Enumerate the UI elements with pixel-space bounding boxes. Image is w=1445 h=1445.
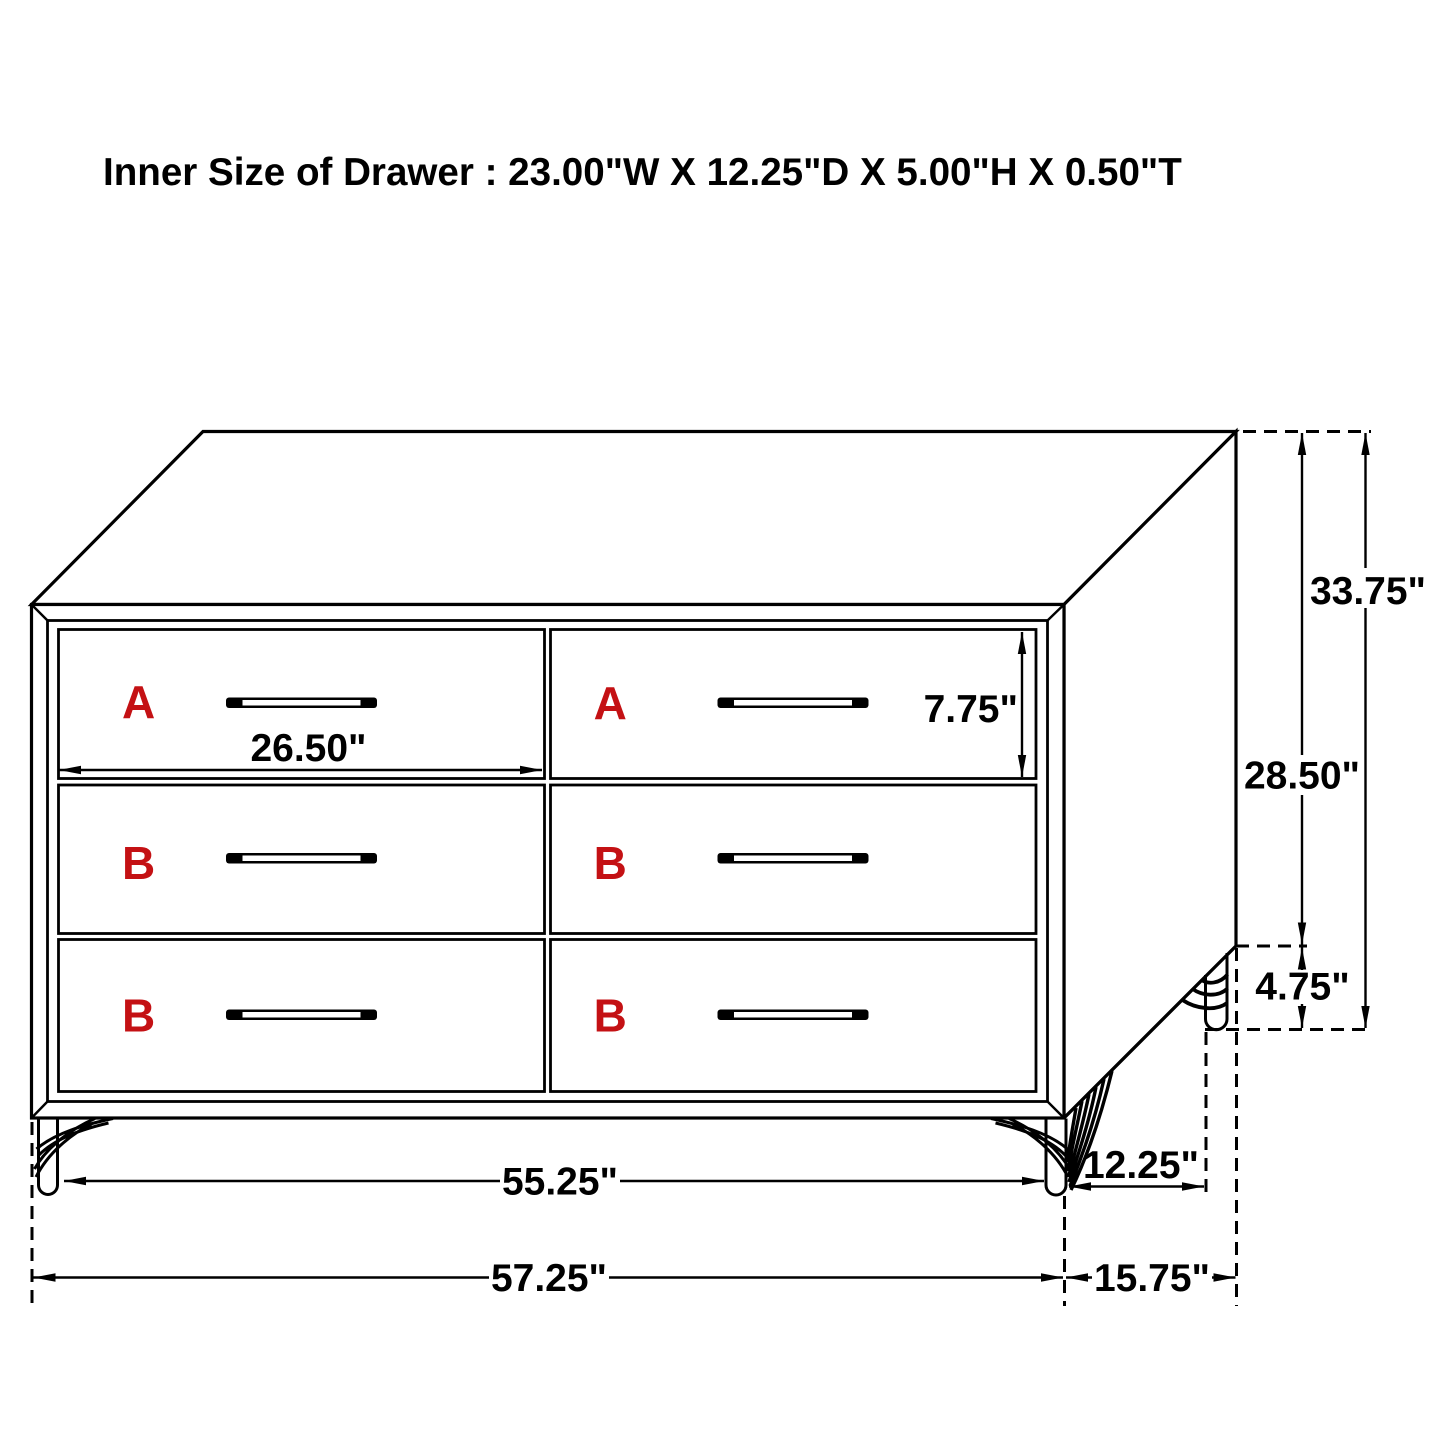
svg-text:55.25": 55.25" (502, 1161, 618, 1204)
svg-text:33.75": 33.75" (1310, 570, 1426, 613)
svg-text:A: A (122, 676, 155, 728)
svg-text:28.50": 28.50" (1244, 755, 1360, 798)
svg-text:B: B (122, 990, 155, 1042)
svg-text:4.75": 4.75" (1255, 966, 1349, 1009)
svg-text:57.25": 57.25" (491, 1257, 607, 1300)
svg-text:15.75": 15.75" (1094, 1257, 1210, 1300)
svg-text:B: B (594, 837, 627, 889)
svg-text:26.50": 26.50" (250, 727, 366, 770)
svg-text:A: A (594, 677, 627, 729)
svg-text:B: B (122, 837, 155, 889)
svg-text:Inner Size of Drawer : 23.00"W: Inner Size of Drawer : 23.00"W X 12.25"D… (103, 151, 1182, 194)
svg-text:7.75": 7.75" (924, 688, 1018, 731)
svg-text:12.25": 12.25" (1083, 1144, 1199, 1187)
svg-text:B: B (594, 990, 627, 1042)
